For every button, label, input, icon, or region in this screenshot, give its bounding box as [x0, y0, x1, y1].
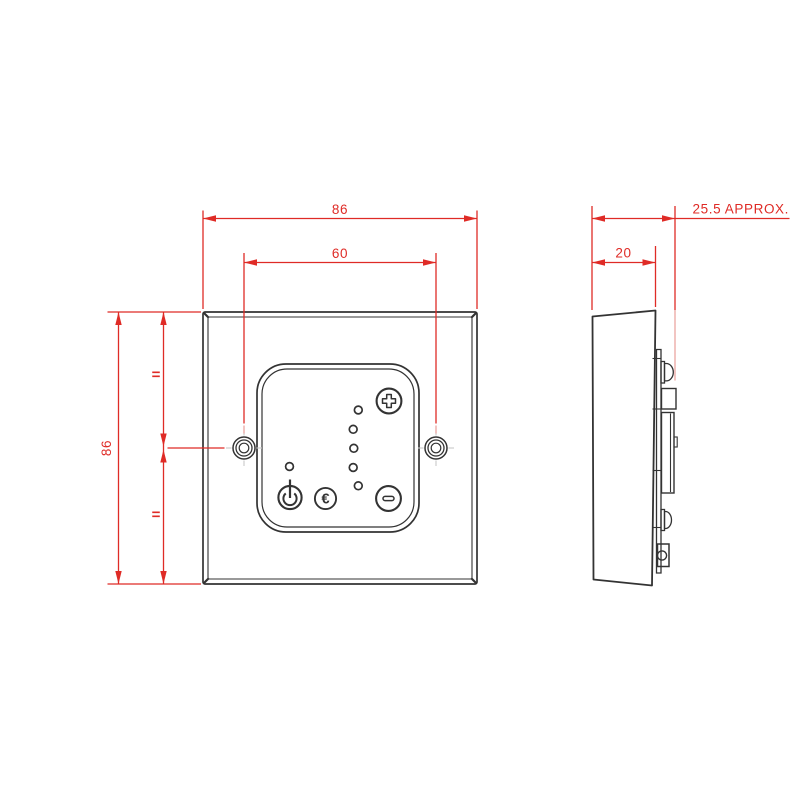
arrowhead-bottom: [115, 571, 121, 584]
dimension-drawing: €: [0, 0, 800, 800]
arrowhead-to-center-lower: [160, 450, 166, 463]
arrowhead-left: [203, 215, 216, 221]
dimension-back-depth: 20: [592, 246, 656, 308]
side-mid-assembly: [662, 413, 678, 494]
arrowhead-top: [115, 312, 121, 325]
arrowhead-bottom: [160, 571, 166, 584]
minus-icon: [383, 496, 394, 500]
technical-drawing-canvas: €: [0, 0, 800, 800]
side-view: [593, 311, 678, 586]
arrowhead-to-center-upper: [160, 434, 166, 447]
dimension-label-overall-depth: 25.5 APPROX.: [693, 202, 790, 217]
eco-icon: €: [321, 492, 329, 508]
dimension-label-front-width: 86: [332, 202, 348, 217]
arrowhead-left: [592, 215, 605, 221]
arrowhead-top: [160, 312, 166, 325]
side-terminal-block: [662, 389, 677, 410]
led-dot-1: [354, 406, 362, 414]
arrowhead-left: [244, 259, 257, 265]
led-dot-5: [354, 482, 362, 490]
arrowhead-right: [464, 215, 477, 221]
arrowhead-right: [423, 259, 436, 265]
side-top-clip: [661, 362, 673, 384]
side-lower-clip: [661, 510, 672, 531]
arrowhead-left: [592, 259, 605, 265]
side-faceplate-profile: [593, 311, 656, 586]
led-dot-3: [350, 444, 358, 452]
led-dot-4: [349, 464, 357, 472]
equal-mark-upper: =: [152, 367, 161, 384]
led-dot-2: [349, 425, 357, 433]
equal-mark-lower: =: [152, 507, 161, 524]
arrowhead-right: [643, 259, 656, 265]
side-backplate-bar: [657, 350, 662, 574]
power-led-indicator: [286, 463, 294, 471]
arrowhead-right: [662, 215, 675, 221]
dimension-label-front-height: 86: [99, 440, 114, 456]
dimension-label-hole-spacing: 60: [332, 246, 348, 261]
dimension-label-back-depth: 20: [615, 246, 631, 261]
